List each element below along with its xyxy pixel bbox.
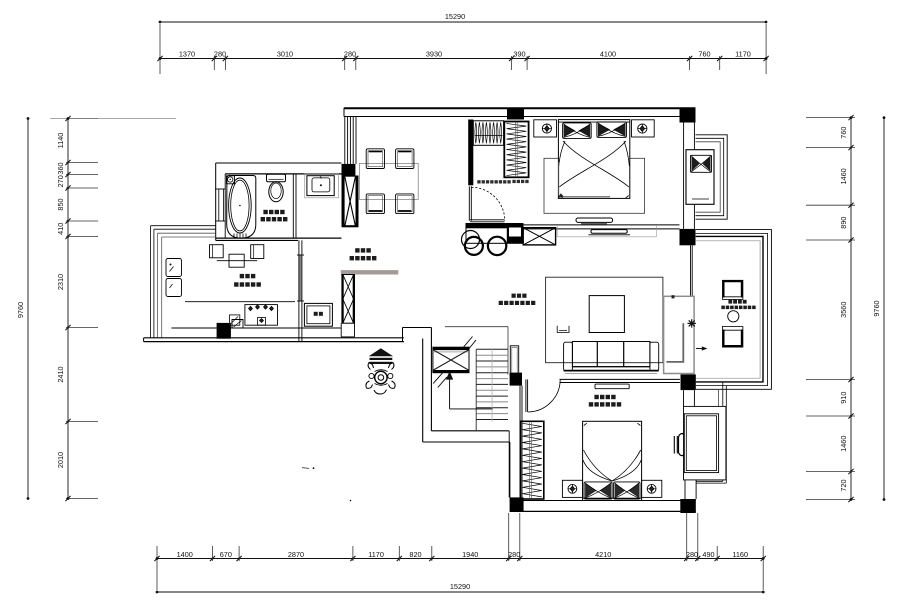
svg-text:1140: 1140 bbox=[56, 133, 65, 149]
svg-text:890: 890 bbox=[839, 217, 848, 229]
svg-text:9760: 9760 bbox=[872, 300, 881, 316]
svg-text:760: 760 bbox=[698, 50, 710, 59]
svg-text:1460: 1460 bbox=[839, 436, 848, 452]
svg-text:820: 820 bbox=[409, 550, 421, 559]
svg-text:2010: 2010 bbox=[56, 452, 65, 468]
svg-text:1400: 1400 bbox=[177, 550, 193, 559]
svg-text:670: 670 bbox=[220, 550, 232, 559]
svg-text:1940: 1940 bbox=[462, 550, 478, 559]
svg-text:720: 720 bbox=[839, 479, 848, 491]
svg-text:1170: 1170 bbox=[368, 550, 384, 559]
svg-text:4100: 4100 bbox=[600, 50, 616, 59]
svg-text:3930: 3930 bbox=[426, 50, 442, 59]
svg-text:1170: 1170 bbox=[735, 50, 751, 59]
svg-text:2410: 2410 bbox=[56, 366, 65, 382]
svg-text:360: 360 bbox=[56, 162, 65, 174]
svg-text:2870: 2870 bbox=[288, 550, 304, 559]
svg-text:1370: 1370 bbox=[179, 50, 195, 59]
svg-text:390: 390 bbox=[513, 50, 525, 59]
svg-text:280: 280 bbox=[508, 550, 520, 559]
svg-text:9760: 9760 bbox=[16, 302, 25, 318]
svg-text:280: 280 bbox=[686, 550, 698, 559]
svg-text:3010: 3010 bbox=[277, 50, 293, 59]
svg-text:280: 280 bbox=[214, 50, 226, 59]
svg-text:3560: 3560 bbox=[839, 302, 848, 318]
svg-text:15290: 15290 bbox=[450, 582, 470, 591]
svg-text:280: 280 bbox=[344, 50, 356, 59]
svg-text:490: 490 bbox=[702, 550, 714, 559]
svg-text:910: 910 bbox=[839, 392, 848, 404]
svg-text:850: 850 bbox=[56, 198, 65, 210]
svg-text:4210: 4210 bbox=[595, 550, 611, 559]
svg-text:1460: 1460 bbox=[839, 168, 848, 184]
svg-text:410: 410 bbox=[56, 223, 65, 235]
svg-text:2310: 2310 bbox=[56, 274, 65, 290]
svg-text:1160: 1160 bbox=[732, 550, 748, 559]
svg-text:760: 760 bbox=[839, 127, 848, 139]
svg-text:270: 270 bbox=[56, 175, 65, 187]
svg-text:15290: 15290 bbox=[445, 12, 465, 21]
